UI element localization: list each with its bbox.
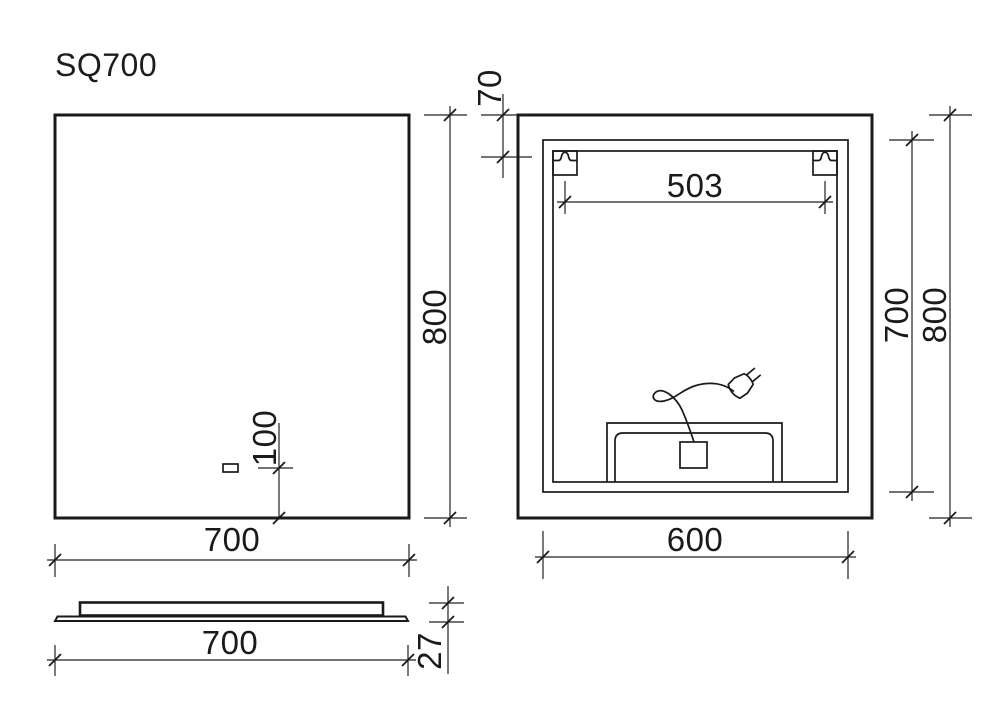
technical-drawing-sheet: SQ700 100 700 800 (0, 0, 1000, 707)
dim-front-width: 700 (47, 521, 417, 577)
dim-back-panel-width: 600 (535, 521, 856, 579)
dim-sensor-offset: 100 (246, 410, 293, 524)
dim-label-bracket-top-offset: 70 (471, 69, 508, 107)
side-view: 700 27 (47, 586, 464, 676)
dim-front-height: 800 (416, 106, 467, 527)
front-mirror-outline (55, 115, 409, 518)
dim-label-back-panel-width: 600 (667, 521, 724, 558)
side-mirror-glass (55, 617, 408, 622)
dim-label-side-width: 700 (202, 624, 259, 661)
dim-back-overall-height: 800 (916, 106, 972, 527)
dim-label-thickness: 27 (411, 632, 448, 670)
front-view: 100 700 800 (47, 106, 467, 577)
dim-side-width: 700 (47, 624, 416, 676)
hanging-bracket-left (553, 151, 577, 175)
dim-label-front-height: 800 (416, 289, 453, 346)
hanging-bracket-right (813, 151, 837, 175)
dim-label-back-panel-height: 700 (878, 287, 915, 344)
driver-plate-outer (607, 423, 782, 482)
dim-bracket-top-offset: 70 (471, 69, 532, 178)
bracket-hook-profile (813, 152, 837, 160)
dim-label-sensor-offset: 100 (246, 410, 283, 467)
junction-box (680, 442, 707, 468)
dim-thickness: 27 (411, 586, 464, 674)
back-view: 503 70 700 800 (471, 69, 972, 579)
side-backbox (80, 603, 383, 616)
bracket-hook-profile (553, 152, 577, 160)
power-plug-icon (726, 364, 764, 401)
dim-label-front-width: 700 (204, 521, 261, 558)
dim-label-bracket-spacing: 503 (667, 167, 724, 204)
dim-bracket-spacing: 503 (557, 167, 833, 214)
dim-label-back-overall-height: 800 (916, 287, 953, 344)
touch-sensor (223, 464, 238, 472)
mirror-dimension-drawing: SQ700 100 700 800 (0, 0, 1000, 707)
page-title: SQ700 (55, 47, 157, 83)
